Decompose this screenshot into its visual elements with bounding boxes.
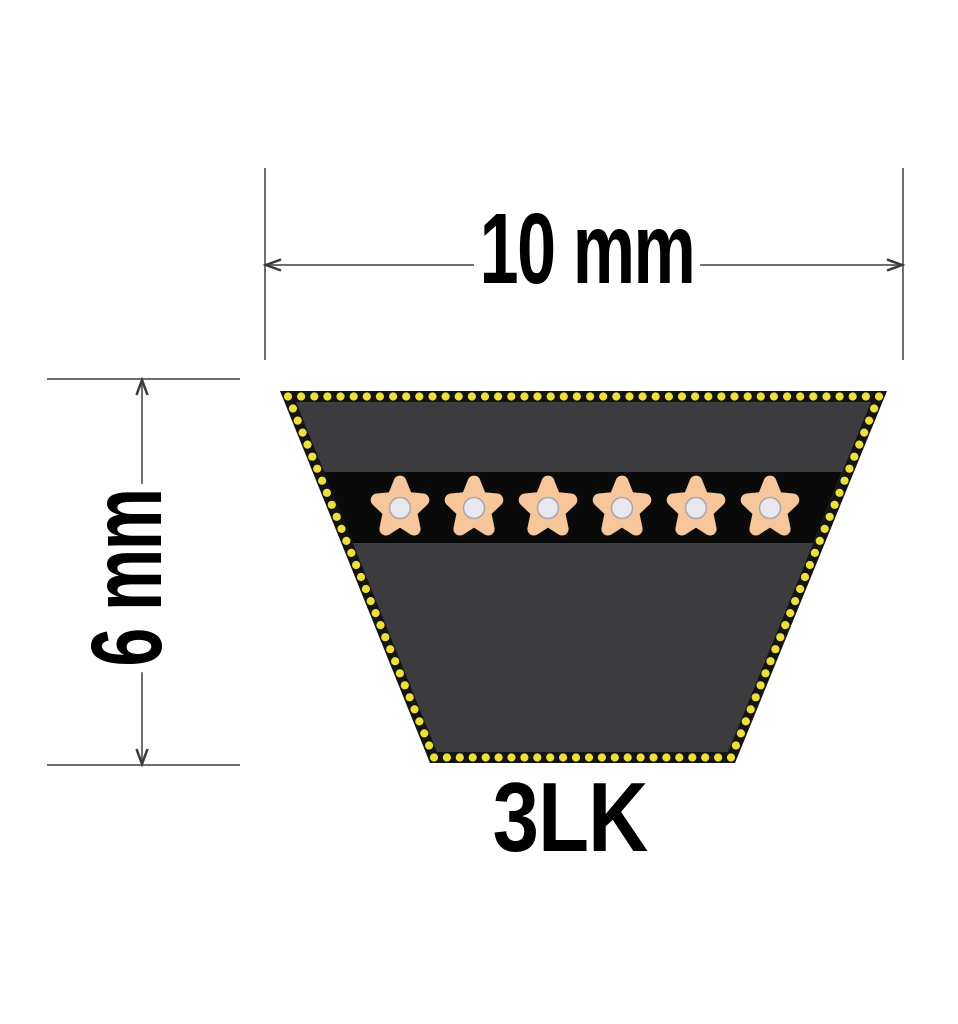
border-dot: [742, 717, 750, 725]
border-dot: [481, 392, 489, 400]
left-height-dimension-label: 6 mm: [77, 484, 177, 672]
belt-body: [296, 402, 871, 752]
border-dot: [401, 681, 409, 689]
border-dot: [572, 753, 580, 761]
border-dot: [299, 429, 307, 437]
border-dot: [625, 392, 633, 400]
border-dot: [294, 417, 302, 425]
border-dot: [766, 657, 774, 665]
border-dot: [442, 392, 450, 400]
belt-designation-label: 3LK: [493, 768, 648, 866]
border-dot: [771, 645, 779, 653]
border-dot: [757, 681, 765, 689]
cord-core: [612, 498, 633, 519]
border-dot: [744, 392, 752, 400]
border-dot: [443, 753, 451, 761]
border-dot: [546, 753, 554, 761]
border-dot: [840, 477, 848, 485]
border-dot: [831, 501, 839, 509]
border-dot: [337, 525, 345, 533]
border-dot: [786, 609, 794, 617]
border-dot: [363, 392, 371, 400]
border-dot: [468, 392, 476, 400]
border-dot: [811, 549, 819, 557]
border-dot: [862, 392, 870, 400]
border-dot: [455, 392, 463, 400]
border-dot: [347, 549, 355, 557]
border-dot: [406, 693, 414, 701]
belt-diagram-canvas: 10 mm 6 mm 3LK: [0, 0, 958, 1024]
border-dot: [381, 633, 389, 641]
border-dot: [826, 513, 834, 521]
border-dot: [747, 705, 755, 713]
border-dot: [757, 392, 765, 400]
border-dot: [737, 729, 745, 737]
border-dot: [806, 561, 814, 569]
border-dot: [559, 753, 567, 761]
border-dot: [396, 669, 404, 677]
border-dot: [389, 392, 397, 400]
cord-core: [390, 498, 411, 519]
border-dot: [791, 597, 799, 605]
border-dot: [323, 392, 331, 400]
border-dot: [704, 392, 712, 400]
border-dot: [809, 392, 817, 400]
border-dot: [611, 753, 619, 761]
border-dot: [796, 585, 804, 593]
border-dot: [495, 753, 503, 761]
border-dot: [342, 537, 350, 545]
border-dot: [770, 392, 778, 400]
border-dot: [875, 392, 883, 400]
border-dot: [420, 729, 428, 737]
border-dot: [865, 417, 873, 425]
border-dot: [701, 753, 709, 761]
border-dot: [816, 537, 824, 545]
cord-core: [464, 498, 485, 519]
border-dot: [599, 392, 607, 400]
border-dot: [336, 392, 344, 400]
top-width-dimension-label: 10 mm: [474, 199, 700, 299]
border-dot: [357, 573, 365, 581]
border-dot: [297, 392, 305, 400]
border-dot: [352, 561, 360, 569]
border-dot: [415, 717, 423, 725]
border-dot: [624, 753, 632, 761]
border-dot: [691, 392, 699, 400]
border-dot: [717, 392, 725, 400]
border-dot: [637, 753, 645, 761]
border-dot: [652, 392, 660, 400]
border-dot: [323, 489, 331, 497]
border-dot: [520, 753, 528, 761]
border-dot: [376, 621, 384, 629]
border-dot: [425, 741, 433, 749]
border-dot: [761, 669, 769, 677]
border-dot: [415, 392, 423, 400]
border-dot: [714, 753, 722, 761]
border-dot: [533, 753, 541, 761]
border-dot: [801, 573, 809, 581]
border-dot: [585, 753, 593, 761]
border-dot: [730, 392, 738, 400]
border-dot: [308, 453, 316, 461]
border-dot: [822, 392, 830, 400]
cord-core: [760, 498, 781, 519]
border-dot: [456, 753, 464, 761]
border-dot: [391, 657, 399, 665]
border-dot: [430, 753, 438, 761]
border-dot: [560, 392, 568, 400]
border-dot: [289, 404, 297, 412]
border-dot: [860, 429, 868, 437]
border-dot: [410, 705, 418, 713]
border-dot: [284, 392, 292, 400]
border-dot: [573, 392, 581, 400]
border-dot: [372, 609, 380, 617]
border-dot: [855, 441, 863, 449]
border-dot: [835, 489, 843, 497]
border-dot: [752, 693, 760, 701]
border-dot: [318, 477, 326, 485]
border-dot: [639, 392, 647, 400]
border-dot: [507, 753, 515, 761]
border-dot: [836, 392, 844, 400]
border-dot: [310, 392, 318, 400]
border-dot: [649, 753, 657, 761]
cord-core: [686, 498, 707, 519]
border-dot: [732, 741, 740, 749]
border-dot: [783, 392, 791, 400]
border-dot: [675, 753, 683, 761]
border-dot: [376, 392, 384, 400]
border-dot: [598, 753, 606, 761]
border-dot: [303, 441, 311, 449]
border-dot: [850, 453, 858, 461]
border-dot: [367, 597, 375, 605]
border-dot: [350, 392, 358, 400]
border-dot: [870, 404, 878, 412]
border-dot: [507, 392, 515, 400]
border-dot: [821, 525, 829, 533]
border-dot: [402, 392, 410, 400]
border-dot: [662, 753, 670, 761]
border-dot: [328, 501, 336, 509]
border-dot: [313, 465, 321, 473]
border-dot: [849, 392, 857, 400]
border-dot: [494, 392, 502, 400]
border-dot: [520, 392, 528, 400]
border-dot: [482, 753, 490, 761]
border-dot: [547, 392, 555, 400]
border-dot: [362, 585, 370, 593]
border-dot: [845, 465, 853, 473]
border-dot: [678, 392, 686, 400]
border-dot: [612, 392, 620, 400]
border-dot: [796, 392, 804, 400]
border-dot: [727, 753, 735, 761]
border-dot: [469, 753, 477, 761]
border-dot: [781, 621, 789, 629]
border-dot: [428, 392, 436, 400]
border-dot: [533, 392, 541, 400]
border-dot: [688, 753, 696, 761]
cord-core: [538, 498, 559, 519]
border-dot: [333, 513, 341, 521]
border-dot: [665, 392, 673, 400]
border-dot: [386, 645, 394, 653]
border-dot: [586, 392, 594, 400]
border-dot: [776, 633, 784, 641]
